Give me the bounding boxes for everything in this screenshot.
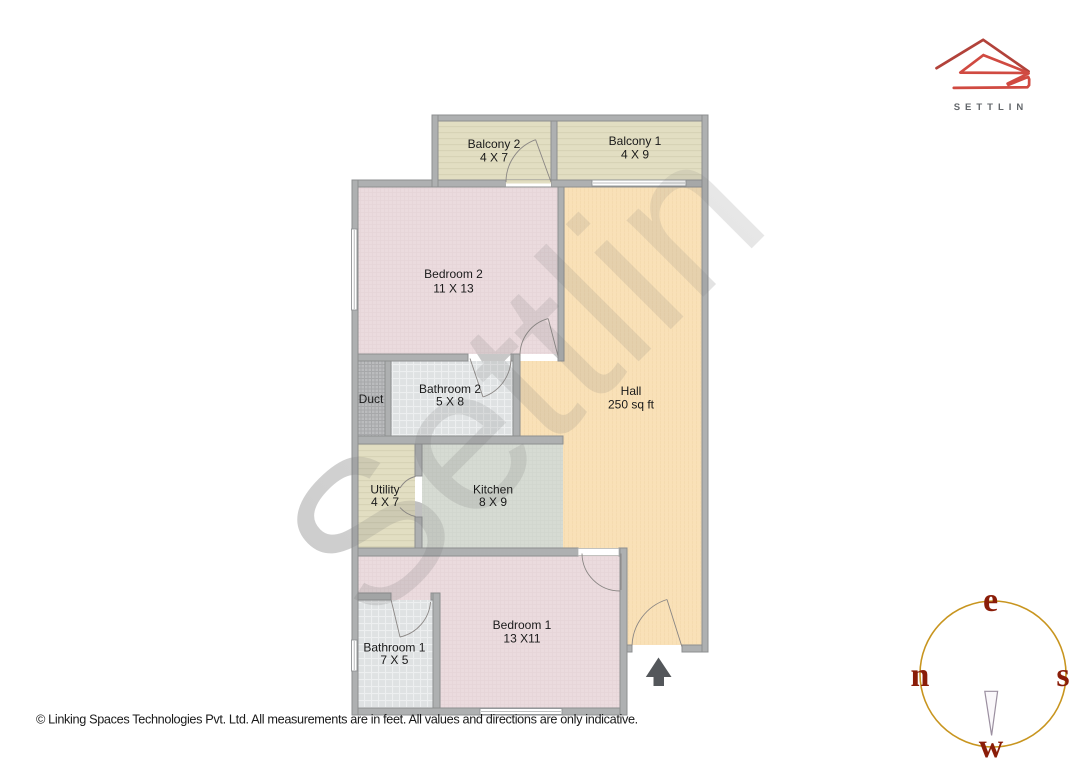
svg-text:4 X 7: 4 X 7 bbox=[371, 495, 399, 509]
svg-text:s: s bbox=[1056, 657, 1069, 694]
svg-text:Bedroom 1: Bedroom 1 bbox=[493, 618, 552, 632]
svg-text:Hall: Hall bbox=[621, 384, 642, 398]
svg-text:13 X11: 13 X11 bbox=[503, 632, 540, 646]
svg-text:8 X 9: 8 X 9 bbox=[479, 495, 507, 509]
svg-text:Balcony 2: Balcony 2 bbox=[468, 137, 521, 151]
svg-text:250 sq ft: 250 sq ft bbox=[608, 398, 655, 412]
svg-text:n: n bbox=[911, 657, 930, 694]
svg-text:w: w bbox=[979, 728, 1004, 764]
svg-text:Balcony 1: Balcony 1 bbox=[609, 134, 662, 148]
svg-text:Bathroom 2: Bathroom 2 bbox=[419, 382, 481, 396]
svg-text:5 X 8: 5 X 8 bbox=[436, 395, 464, 409]
svg-text:4 X 9: 4 X 9 bbox=[621, 148, 649, 162]
svg-text:4 X 7: 4 X 7 bbox=[480, 151, 508, 165]
svg-text:Bedroom 2: Bedroom 2 bbox=[424, 267, 483, 281]
svg-text:Duct: Duct bbox=[359, 392, 384, 406]
svg-text:7 X 5: 7 X 5 bbox=[380, 653, 408, 667]
svg-text:© Linking Spaces Technologies: © Linking Spaces Technologies Pvt. Ltd. … bbox=[36, 713, 638, 727]
svg-text:e: e bbox=[983, 582, 998, 619]
svg-text:11 X 13: 11 X 13 bbox=[433, 281, 474, 295]
svg-text:SETTLIN: SETTLIN bbox=[954, 102, 1029, 113]
